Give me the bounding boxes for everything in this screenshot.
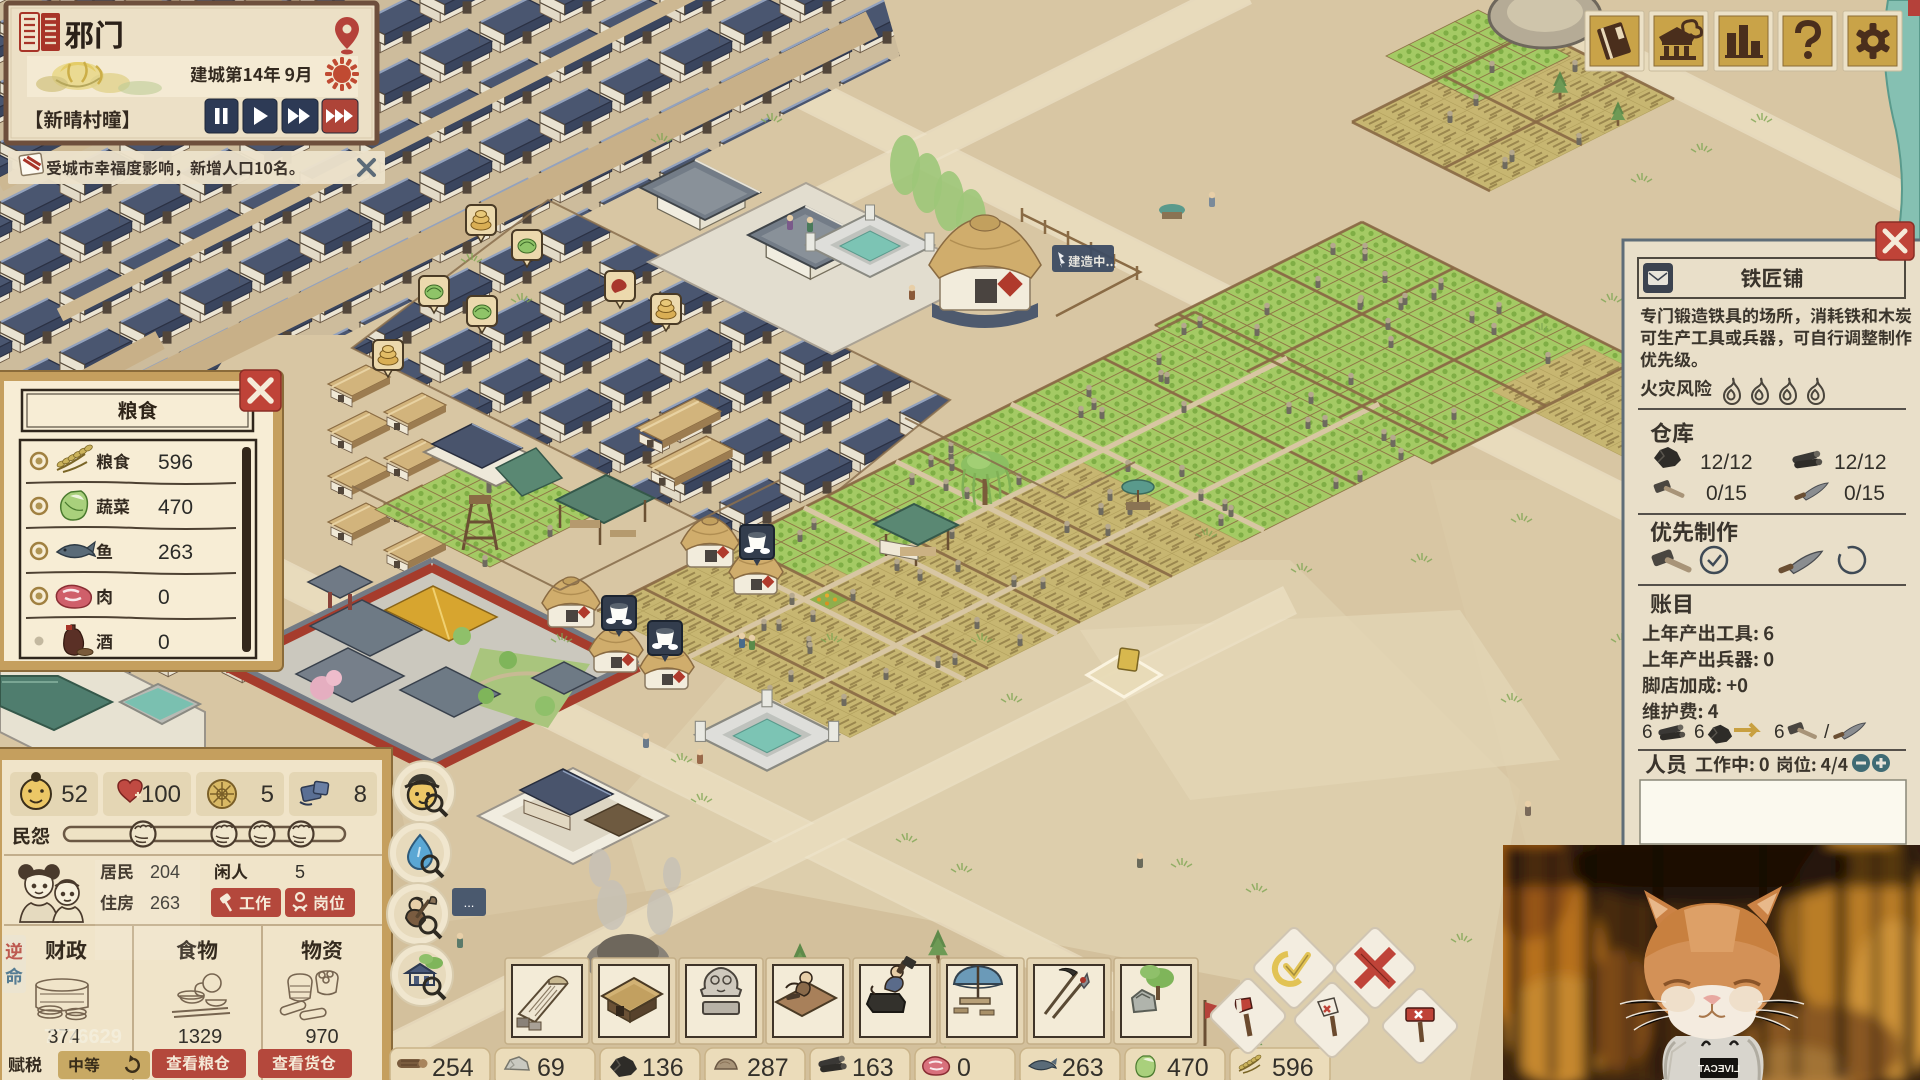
svg-text:12/12: 12/12	[1700, 451, 1753, 474]
svg-text:470: 470	[1167, 1054, 1209, 1080]
svg-text:596: 596	[1272, 1054, 1314, 1080]
svg-text:6: 6	[1774, 722, 1785, 743]
svg-text:136: 136	[642, 1054, 684, 1080]
svg-text:0: 0	[158, 586, 170, 609]
svg-text:6: 6	[1694, 722, 1705, 743]
svg-text:12/12: 12/12	[1834, 451, 1887, 474]
svg-text:254: 254	[432, 1054, 474, 1080]
svg-text:0/15: 0/15	[1706, 482, 1747, 505]
svg-text:287: 287	[747, 1054, 789, 1080]
svg-text:263: 263	[158, 541, 193, 564]
svg-text:52: 52	[61, 781, 88, 808]
svg-text:5: 5	[295, 862, 305, 882]
svg-text:0/15: 0/15	[1844, 482, 1885, 505]
svg-text:100: 100	[141, 781, 181, 808]
svg-text:...: ...	[464, 895, 475, 910]
svg-text:970: 970	[305, 1026, 338, 1048]
svg-text:8: 8	[354, 781, 367, 808]
svg-text:7776629: 7776629	[44, 1026, 122, 1048]
svg-text:1329: 1329	[178, 1026, 223, 1048]
svg-text:0: 0	[158, 631, 170, 654]
svg-text:470: 470	[158, 496, 193, 519]
svg-text:6: 6	[1642, 722, 1653, 743]
svg-text:5: 5	[261, 781, 274, 808]
svg-text:263: 263	[1062, 1054, 1104, 1080]
svg-text:/: /	[1824, 722, 1830, 743]
svg-text:69: 69	[537, 1054, 565, 1080]
svg-text:0: 0	[957, 1054, 971, 1080]
svg-text:LIVECAT: LIVECAT	[1698, 1064, 1740, 1075]
svg-text:596: 596	[158, 451, 193, 474]
svg-text:163: 163	[852, 1054, 894, 1080]
